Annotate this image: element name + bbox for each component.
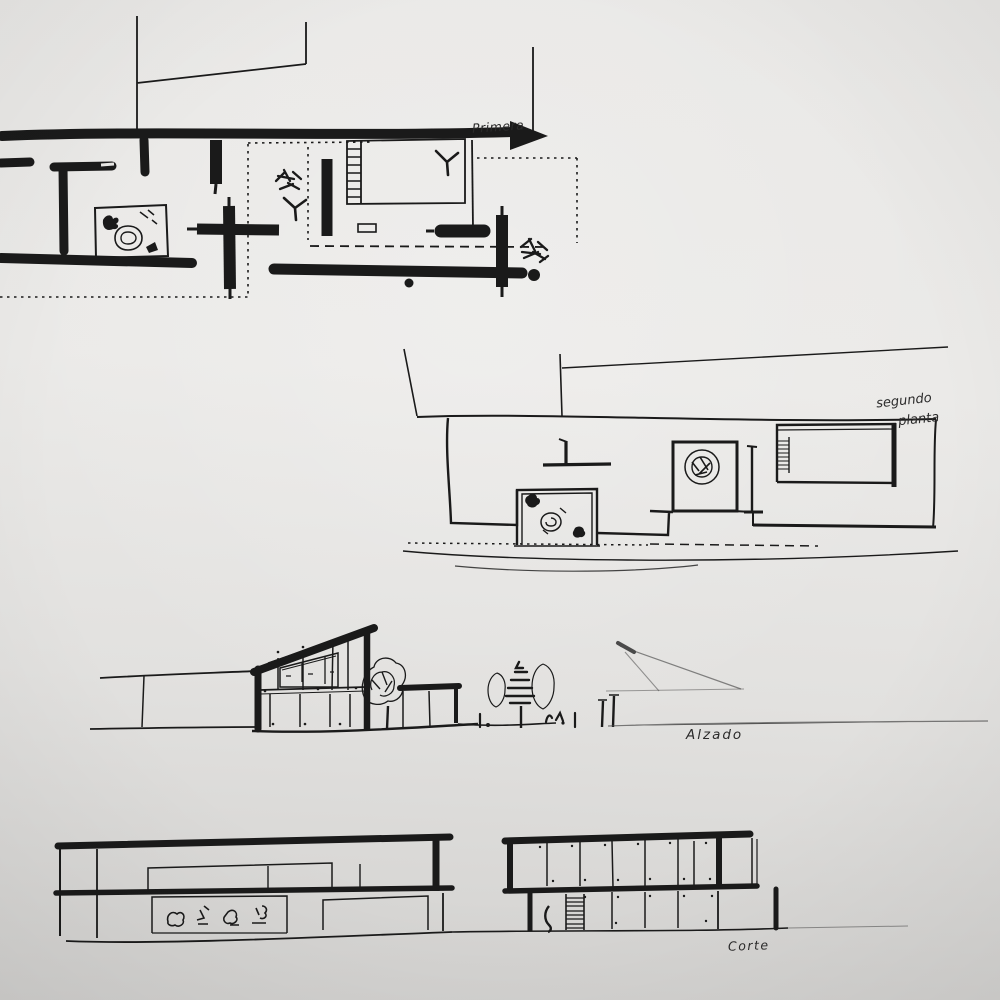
elevation-drawing: Alzado xyxy=(90,628,988,743)
panel-dots xyxy=(539,842,713,924)
label-corte: Corte xyxy=(728,937,770,953)
label-alzado: Alzado xyxy=(685,727,743,743)
interior-scribbles xyxy=(168,906,267,926)
tree-symbol xyxy=(284,151,458,220)
section-right-building xyxy=(505,834,776,932)
section-left-building xyxy=(56,837,452,938)
plan2-table xyxy=(543,439,611,465)
first-floor-plan: Primera xyxy=(0,16,577,299)
sketch-canvas: Primera xyxy=(0,0,1000,1000)
plan1-planter-scribble xyxy=(95,205,168,258)
second-floor-plan: segundo planta xyxy=(403,347,958,571)
faint-roof-echo xyxy=(606,643,988,726)
plan1-furniture xyxy=(358,224,484,232)
label-planta: planta xyxy=(896,410,940,429)
garden-trees xyxy=(480,662,619,728)
ground-line xyxy=(66,926,908,942)
sketch-sheet: Primera xyxy=(0,0,1000,1000)
plan2-patio xyxy=(514,489,600,546)
stairs-hatch xyxy=(777,441,789,469)
terrain-lines xyxy=(403,551,958,571)
leader-lines xyxy=(404,347,948,416)
section-drawing: Corte xyxy=(56,834,908,954)
fence-lines xyxy=(90,671,256,729)
label-segundo: segundo xyxy=(875,391,932,412)
person-mark xyxy=(545,906,551,932)
plan2-room-tree xyxy=(673,442,737,511)
plan2-bedroom-stairs xyxy=(777,423,896,487)
main-building xyxy=(254,628,374,729)
plan2-outline xyxy=(417,416,936,535)
plan2-dotted-boundary xyxy=(408,543,818,546)
ladder xyxy=(566,894,584,930)
plan1-room-stairs xyxy=(347,139,473,229)
plan2-post xyxy=(744,446,763,512)
leader-lines xyxy=(137,16,533,132)
plan1-walls xyxy=(1,121,548,299)
conifer-tree xyxy=(506,662,534,728)
stairs-hatch xyxy=(347,149,361,197)
